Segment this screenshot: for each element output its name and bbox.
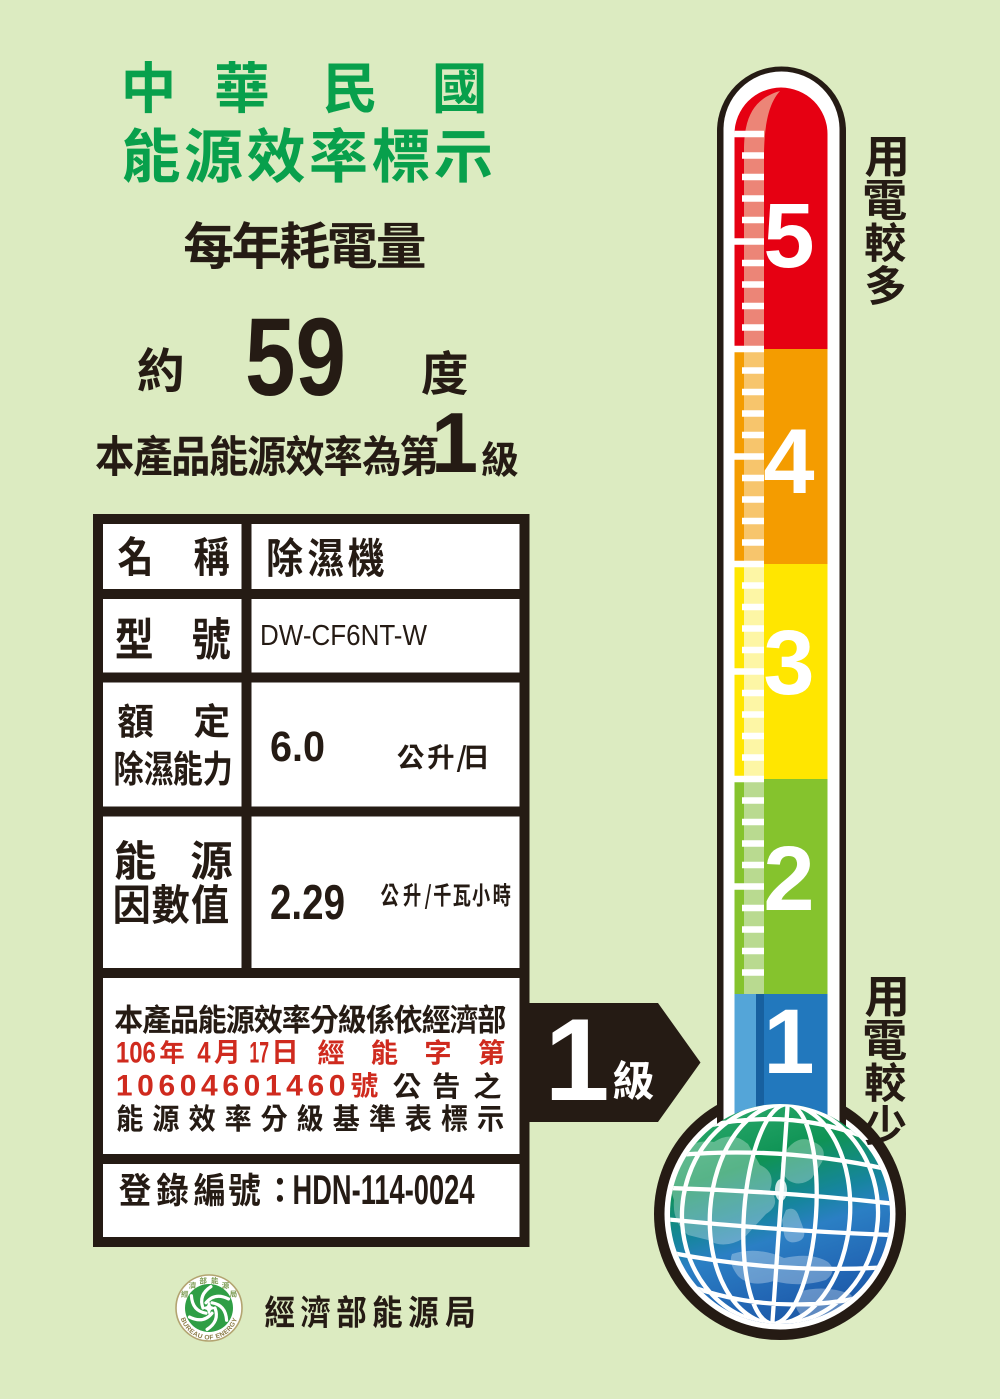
svg-text:59: 59 (245, 296, 346, 419)
svg-text:4: 4 (763, 411, 814, 513)
svg-text:106: 106 (116, 1037, 156, 1070)
svg-text:10604601460: 10604601460 (116, 1070, 350, 1103)
svg-text:4: 4 (197, 1037, 211, 1070)
svg-text:2.29: 2.29 (270, 876, 345, 930)
svg-text:HDN-114-0024: HDN-114-0024 (293, 1166, 475, 1213)
svg-text:1: 1 (763, 991, 814, 1093)
svg-text:5: 5 (763, 185, 814, 287)
svg-text:1: 1 (431, 396, 478, 491)
svg-text:3: 3 (763, 612, 814, 714)
svg-text:1: 1 (544, 994, 609, 1125)
svg-text:DW-CF6NT-W: DW-CF6NT-W (260, 620, 428, 652)
svg-text:17: 17 (249, 1037, 269, 1070)
svg-text:2: 2 (763, 828, 814, 930)
svg-text:6.0: 6.0 (270, 723, 325, 771)
